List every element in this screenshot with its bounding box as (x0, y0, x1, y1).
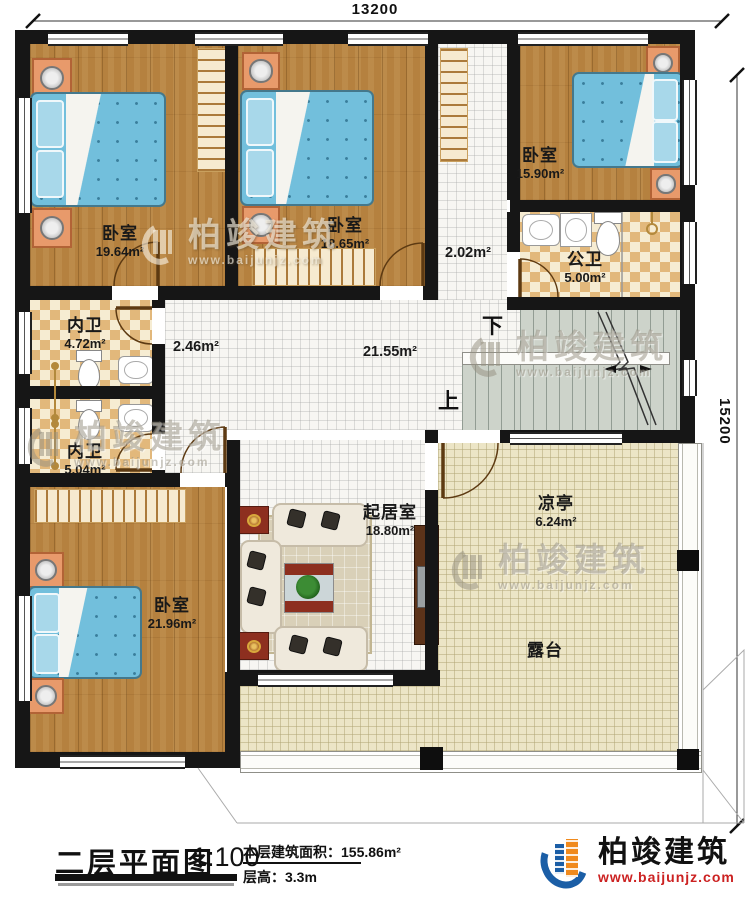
terrace-column-bottom (420, 747, 443, 770)
window (48, 32, 128, 46)
end-table (239, 632, 269, 660)
window (17, 98, 32, 213)
washing-machine (560, 213, 592, 247)
nightstand (28, 552, 64, 588)
window (682, 360, 697, 396)
pillow (652, 79, 678, 121)
wall-interior (225, 44, 238, 300)
floor-area-text: 本层建筑面积：155.86m² (243, 842, 401, 862)
wall-interior (507, 212, 520, 252)
label-corridor-left-area: 2.46m² (173, 339, 219, 355)
sink (118, 356, 154, 384)
wall-interior (152, 300, 165, 308)
label-bedroom-top-middle: 卧室18.65m² (321, 216, 369, 251)
label-inner-bath-bottom: 内卫5.04m² (64, 442, 105, 477)
stairs-handrail (462, 352, 670, 365)
floor-terrace-bottom (240, 686, 438, 751)
window (195, 32, 283, 46)
window (510, 432, 622, 445)
label-inner-bath-top: 内卫4.72m² (64, 316, 105, 351)
window (682, 80, 697, 185)
nightstand (242, 52, 280, 90)
label-terrace: 露台 (527, 641, 563, 661)
nightstand (32, 208, 72, 248)
bed-sheet (66, 94, 108, 205)
wall-interior (15, 286, 112, 300)
label-pavilion: 凉亭6.24m² (535, 494, 576, 529)
floor-stairs-lower-flight (462, 363, 520, 430)
bed-top-middle (240, 90, 374, 206)
sink (118, 404, 154, 432)
label-public-bath: 公卫5.00m² (564, 250, 605, 285)
wall-interior (425, 44, 438, 300)
wall-interior (225, 672, 240, 768)
pillow (36, 100, 64, 148)
nightstand (242, 206, 280, 244)
window (682, 222, 697, 284)
pillow (36, 150, 64, 198)
pillow (34, 634, 60, 674)
title-block: 二层平面图 1:100 本层建筑面积：155.86m² 层高：3.3m 柏竣建筑… (0, 836, 750, 897)
bed-bottom-left (28, 586, 142, 679)
window (258, 673, 393, 687)
pillow (246, 98, 274, 146)
label-corridor-right-area: 2.02m² (445, 245, 491, 261)
wall-interior (425, 430, 438, 443)
label-bedroom-top-right: 卧室15.90m² (516, 146, 564, 181)
label-stairs-up: 上 (438, 385, 459, 415)
window (17, 596, 32, 701)
terrace-column-corner (677, 749, 699, 770)
closet (34, 489, 186, 523)
brand-website: www.baijunjz.com (598, 869, 735, 885)
bed-top-right (572, 72, 684, 168)
window (518, 32, 648, 46)
title-divider (243, 862, 361, 864)
dimension-right: 15200 (716, 398, 733, 445)
wall-interior (30, 386, 152, 399)
toilet (76, 400, 102, 440)
pillow (652, 121, 678, 163)
sink (522, 214, 560, 246)
wall-interior (227, 440, 240, 672)
closet-corridor (440, 48, 468, 162)
window (17, 408, 32, 464)
label-bedroom-bottom-left: 卧室21.96m² (148, 596, 196, 631)
closet (252, 248, 376, 286)
end-table (239, 506, 269, 534)
floor-height-text: 层高：3.3m (243, 867, 317, 887)
label-bedroom-top-left: 卧室19.64m² (96, 224, 144, 259)
floor-stairs-main (520, 310, 680, 430)
wall-interior (158, 286, 380, 300)
terrace-railing-right (678, 443, 702, 773)
pillow (34, 593, 60, 633)
terrace-column-right (677, 550, 699, 571)
wall-interior (423, 286, 438, 300)
dimension-top: 13200 (330, 1, 420, 18)
window (60, 755, 185, 769)
floorplan-page: 13200 15200 (0, 0, 750, 897)
label-living-room: 起居室18.80m² (363, 503, 417, 538)
toilet (76, 350, 102, 390)
pillow (246, 149, 274, 197)
wall-interior (510, 200, 680, 212)
brand-logo-icon (540, 836, 588, 890)
nightstand (650, 168, 682, 200)
wall-interior (425, 490, 438, 672)
window (348, 32, 428, 46)
window (17, 312, 32, 374)
bed-sheet (619, 74, 654, 166)
brand-name: 柏竣建筑 (598, 836, 735, 869)
wardrobe (197, 48, 227, 172)
bed-sheet (276, 92, 318, 204)
title-underline-shadow (58, 883, 234, 886)
wall-interior (507, 297, 695, 310)
terrace-railing-bottom (240, 751, 702, 773)
label-hall-area: 21.55m² (363, 344, 417, 360)
bed-sheet (59, 588, 94, 677)
title-underline (55, 874, 237, 881)
nightstand (28, 678, 64, 714)
floor-corridor-left (165, 430, 227, 473)
bed-top-left (30, 92, 166, 207)
brand-logo: 柏竣建筑 www.baijunjz.com (540, 836, 735, 890)
label-stairs-down: 下 (482, 310, 503, 340)
wall-interior (152, 344, 165, 434)
plant (296, 575, 320, 599)
